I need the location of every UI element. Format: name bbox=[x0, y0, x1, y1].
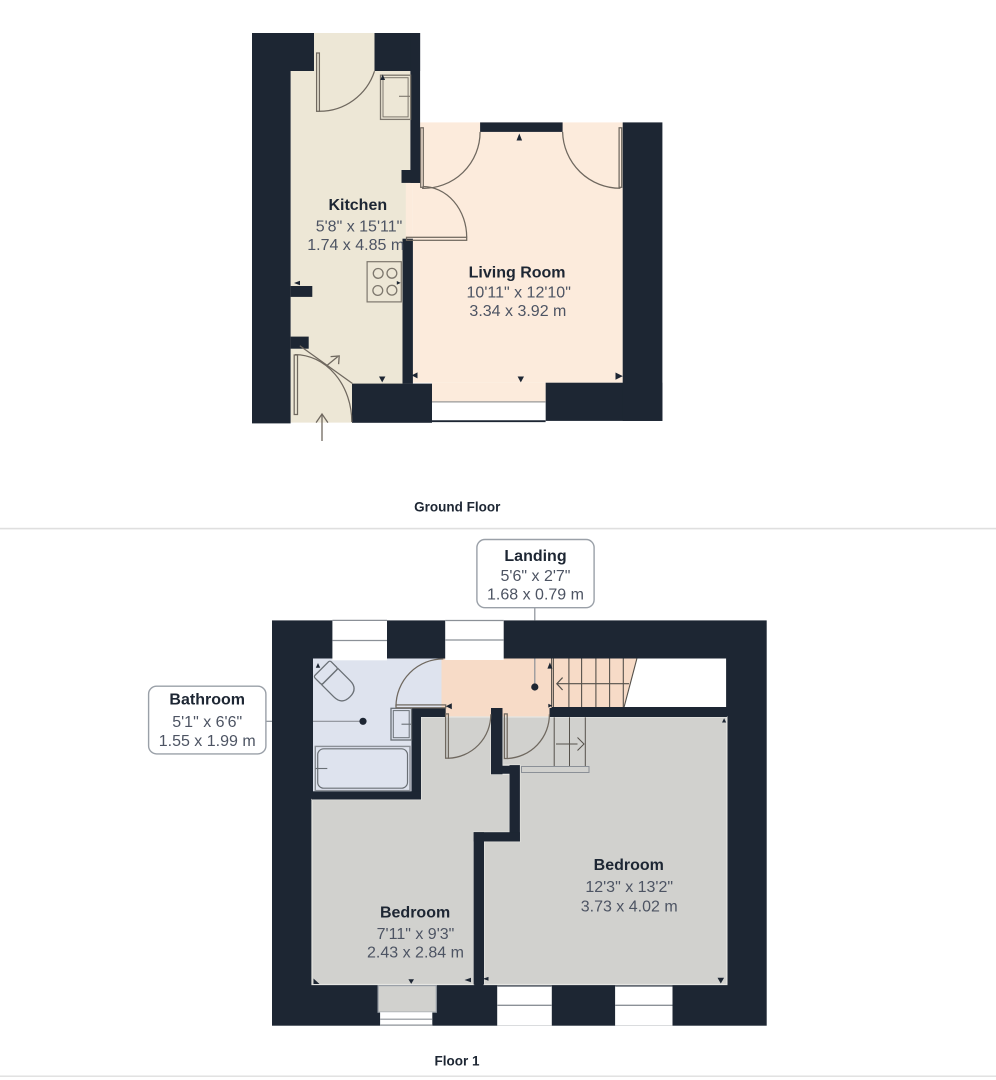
svg-text:Landing: Landing bbox=[504, 548, 566, 565]
svg-text:Bedroom: Bedroom bbox=[594, 857, 664, 874]
svg-text:1.74 x 4.85 m: 1.74 x 4.85 m bbox=[307, 237, 404, 254]
svg-text:5'8" x 15'11": 5'8" x 15'11" bbox=[316, 219, 403, 236]
svg-text:1.68 x 0.79 m: 1.68 x 0.79 m bbox=[487, 587, 584, 604]
svg-text:10'11" x 12'10": 10'11" x 12'10" bbox=[467, 285, 571, 302]
svg-text:12'3" x 13'2": 12'3" x 13'2" bbox=[585, 879, 673, 896]
svg-text:5'1" x 6'6": 5'1" x 6'6" bbox=[172, 714, 242, 731]
svg-text:7'11" x 9'3": 7'11" x 9'3" bbox=[377, 926, 455, 943]
svg-text:3.34 x 3.92 m: 3.34 x 3.92 m bbox=[469, 303, 566, 320]
svg-text:3.73 x 4.02 m: 3.73 x 4.02 m bbox=[581, 899, 678, 916]
svg-text:2.43 x 2.84 m: 2.43 x 2.84 m bbox=[367, 945, 464, 962]
svg-text:5'6" x 2'7": 5'6" x 2'7" bbox=[501, 568, 571, 585]
svg-text:Ground Floor: Ground Floor bbox=[414, 500, 501, 515]
svg-text:1.55 x 1.99 m: 1.55 x 1.99 m bbox=[159, 733, 256, 750]
svg-text:Kitchen: Kitchen bbox=[328, 197, 387, 214]
svg-text:Living Room: Living Room bbox=[469, 265, 566, 282]
svg-text:Bedroom: Bedroom bbox=[380, 904, 450, 921]
svg-text:Bathroom: Bathroom bbox=[169, 692, 245, 709]
svg-text:Floor 1: Floor 1 bbox=[434, 1053, 479, 1068]
